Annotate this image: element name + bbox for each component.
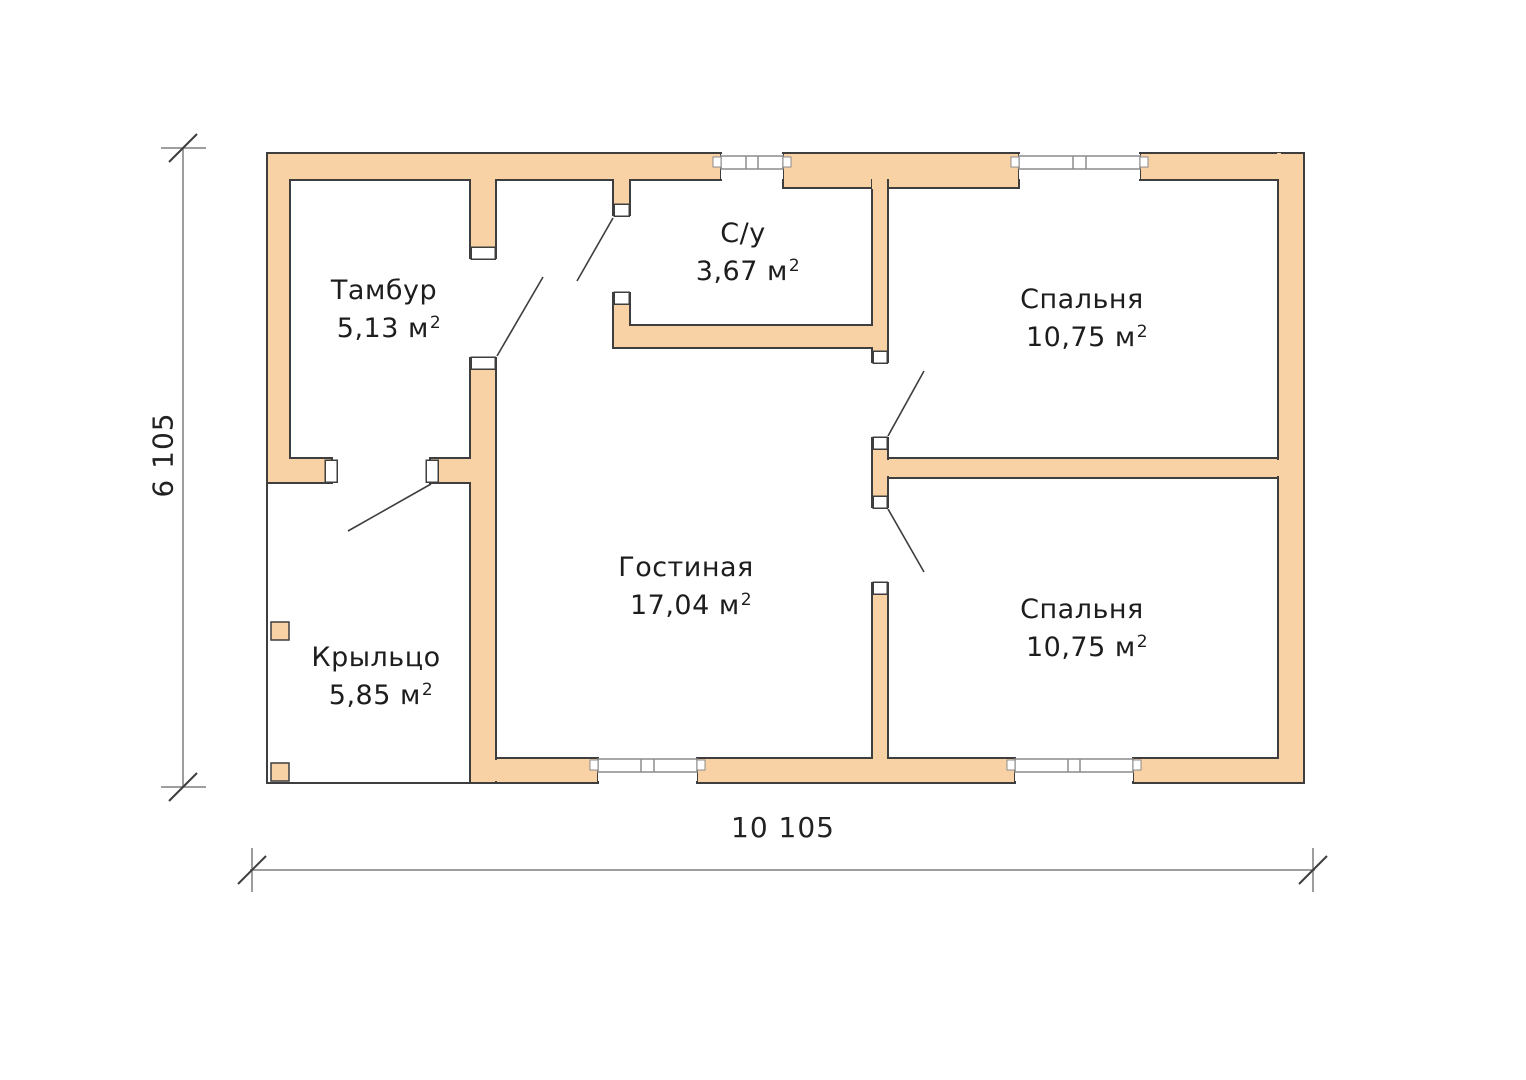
porch-post [271,763,289,781]
room-label-tambur: Тамбур 5,13 м2 [327,274,441,345]
wall-top-left [267,153,721,180]
wall-tambur-bottom-right [430,458,496,483]
window-bedroom-top [1011,154,1148,179]
window-su [713,154,791,179]
wall-bedrooms-divider [888,458,1278,478]
wall-su-bottom [613,325,872,348]
wall-left [267,153,290,483]
door-swings [348,218,924,572]
door-jambs [325,204,887,594]
room-label-bedroom-bottom: Спальня 10,75 м2 [1016,593,1148,664]
door-bedroom-bottom [888,509,924,572]
dimension-height-label: 6 105 [147,412,180,497]
dimension-width-label: 10 105 [731,811,835,844]
wall-living-left [470,358,496,783]
floor-plan-page: Тамбур 5,13 м2 С/у 3,67 м2 Спальня 10,75… [0,0,1526,1080]
room-label-su: С/у 3,67 м2 [686,217,800,288]
room-label-porch: Крыльцо 5,85 м2 [311,641,440,712]
wall-central-lower [872,583,888,758]
room-area: 3,67 м2 [696,250,800,288]
door-bedroom-top [888,371,924,436]
wall-bottom-middle [697,758,1015,783]
room-area: 5,85 м2 [321,674,440,712]
room-area: 10,75 м2 [1026,626,1148,664]
room-name: Тамбур [327,274,441,307]
room-area: 10,75 м2 [1026,316,1148,354]
room-area: 5,13 м2 [337,307,441,345]
room-name: Спальня [1016,283,1148,316]
room-label-bedroom-top: Спальня 10,75 м2 [1016,283,1148,354]
floor-plan-drawing [0,0,1526,1080]
porch-outline [267,483,471,783]
window-bedroom-bottom [1007,759,1141,781]
room-area: 17,04 м2 [628,584,754,622]
wall-top-middle [783,153,1019,188]
wall-right [1278,153,1304,783]
wall-tambur-bottom-left [267,458,332,483]
porch-post [271,622,289,640]
room-name: Крыльцо [311,641,440,674]
room-name: Гостиная [618,551,754,584]
room-name: Спальня [1016,593,1148,626]
room-label-gostinaya: Гостиная 17,04 м2 [618,551,754,622]
door-tambur-porch [348,484,431,531]
window-living [590,759,705,781]
room-name: С/у [686,217,800,250]
door-su [577,218,613,281]
door-tambur-living [497,277,543,356]
